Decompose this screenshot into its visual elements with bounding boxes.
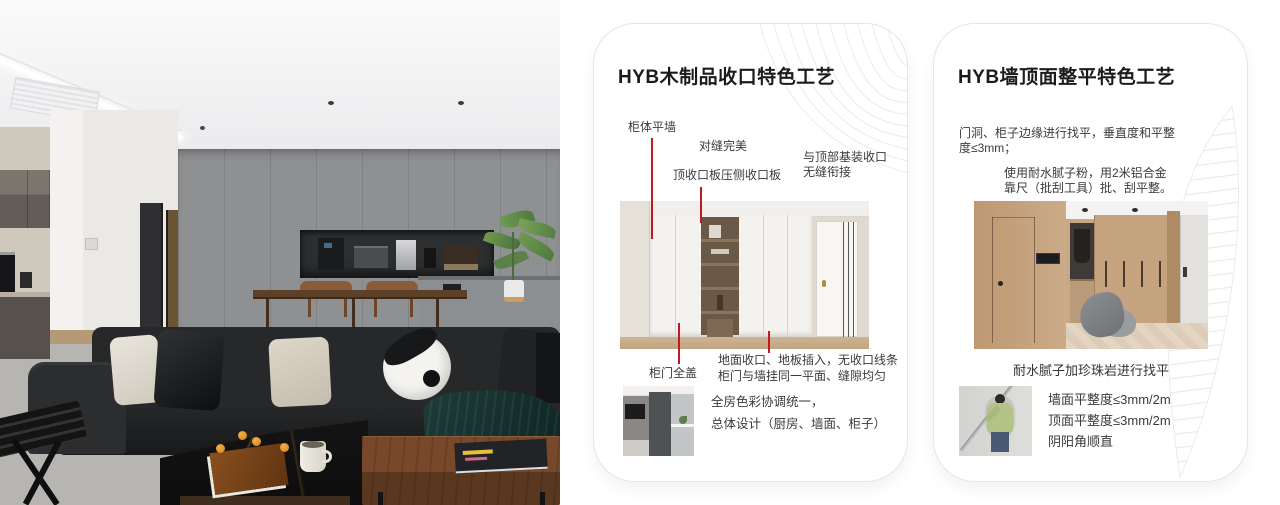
plant-pot xyxy=(504,280,524,302)
color-scheme-thumbnail xyxy=(623,386,694,456)
paragraph-putty-line1: 使用耐水腻子粉，用2米铝合金 xyxy=(1004,166,1167,181)
callout-perfect-seam: 对缝完美 xyxy=(699,140,747,153)
coffee-machine xyxy=(0,252,15,292)
thumb-dark-cabinet xyxy=(649,392,671,456)
plant-stem xyxy=(512,232,514,284)
card2-title: HYB墙顶面整平特色工艺 xyxy=(958,62,1175,89)
coffee-bar-niche xyxy=(300,230,494,278)
spec-ceiling-flatness: 顶面平整度≤3mm/2m xyxy=(1048,410,1171,431)
room-spotlight xyxy=(1132,208,1138,212)
ceiling-spotlight xyxy=(458,101,464,105)
slit-handle xyxy=(1105,261,1107,287)
callout-ceiling-joint-line2: 无缝衔接 xyxy=(803,165,851,180)
ceiling-spotlight xyxy=(328,101,334,105)
note-overall-design: 总体设计（厨房、墙面、柜子） xyxy=(711,414,886,434)
spec-wall-flatness: 墙面平整度≤3mm/2m xyxy=(1048,389,1171,410)
cup-shelf xyxy=(354,246,388,268)
callout-ceiling-joint-line1: 与顶部基装收口 xyxy=(803,150,887,165)
page: HYB木制品收口特色工艺 柜体平墙 对缝完美 顶收口板压侧收口板 与顶部基装收口… xyxy=(0,0,1280,505)
table-leg-metal xyxy=(540,492,545,505)
kitchen-upper-cabinets xyxy=(0,170,50,228)
table-wood-base xyxy=(180,496,350,505)
table-leg-metal xyxy=(378,492,383,505)
callout-floor-line2: 柜门与墙挂同一平面、缝隙均匀 xyxy=(718,369,886,384)
mug-opening xyxy=(302,441,324,448)
slit-handle xyxy=(1123,261,1125,287)
paragraph-leveling-line1: 门洞、柜子边缘进行找平，垂直度和平整 xyxy=(959,126,1175,141)
shelf-board xyxy=(701,263,739,266)
plant-leaf xyxy=(493,248,529,273)
door-stripe xyxy=(848,222,849,338)
render-door xyxy=(816,221,858,337)
shelf-board xyxy=(701,287,739,290)
spec-corner-straight: 阴阳角顺直 xyxy=(1048,431,1113,452)
orange-fruit xyxy=(252,437,261,446)
paragraph-putty-line2: 靠尺（批刮工具）批、刮平整。 xyxy=(1004,181,1172,196)
cabinet-door-seam xyxy=(763,215,764,337)
room-left-wood-wall xyxy=(974,201,1066,349)
thumb-tv xyxy=(625,404,645,419)
black-sling-chair xyxy=(0,408,88,505)
shelf-board xyxy=(701,311,739,314)
worker-jeans xyxy=(991,432,1009,452)
card1-title: HYB木制品收口特色工艺 xyxy=(618,62,835,89)
kitchen-lower-cabinets xyxy=(0,297,50,359)
kitchen-appliance xyxy=(20,272,32,288)
door-stripe xyxy=(843,222,844,338)
door-frame-wood xyxy=(1167,211,1180,339)
white-mug xyxy=(300,441,326,472)
ceiling-spotlight xyxy=(200,126,205,130)
plant-leaf xyxy=(483,228,521,253)
magazine-title-strip xyxy=(463,449,493,455)
leader-line xyxy=(678,323,680,364)
wall-switch xyxy=(85,238,98,250)
pillow-black-edge xyxy=(536,333,560,403)
room-spotlight xyxy=(1082,208,1088,212)
shelf-decor-frame xyxy=(709,225,721,238)
dining-table xyxy=(253,290,467,299)
card-woodwork-craft: HYB木制品收口特色工艺 柜体平墙 对缝完美 顶收口板压侧收口板 与顶部基装收口… xyxy=(593,23,908,482)
espresso-machine xyxy=(396,240,416,270)
pillow-black xyxy=(153,329,224,411)
orange-fruit xyxy=(280,443,289,452)
render-wood-floor xyxy=(620,337,869,349)
panda-eye xyxy=(423,370,440,387)
thumb-plant xyxy=(679,416,687,424)
door-seam xyxy=(992,217,993,343)
worker-thumbnail xyxy=(959,386,1032,456)
magazine-subtitle-strip xyxy=(465,457,487,461)
pillow-beige xyxy=(268,336,331,407)
callout-floor-line1: 地面收口、地板插入，无收口线条 xyxy=(718,353,898,368)
shelf-decor-item xyxy=(711,249,729,254)
cabinet-render-photo xyxy=(620,201,869,349)
note-color-harmony: 全房色彩协调统一， xyxy=(711,392,824,412)
slit-handle xyxy=(1159,261,1161,287)
shelf-board xyxy=(701,239,739,242)
paragraph-leveling-line2: 度≤3mm； xyxy=(959,141,1016,156)
door-handle xyxy=(998,281,1003,286)
thumb-counter xyxy=(671,424,694,427)
hanging-clothes xyxy=(1074,229,1090,263)
intercom-panel xyxy=(1036,253,1060,264)
leader-line xyxy=(651,138,653,239)
orange-fruit xyxy=(216,444,225,453)
glass-door-handle xyxy=(1183,267,1187,277)
chair-straps xyxy=(0,400,87,458)
thumb-floor xyxy=(623,440,649,456)
panda-pillow xyxy=(383,334,451,402)
potted-plant xyxy=(470,210,560,305)
photo-caption: 耐水腻子加珍珠岩进行找平 xyxy=(974,360,1208,379)
interior-door-dark xyxy=(140,203,163,335)
orange-fruit xyxy=(238,431,247,440)
kettle xyxy=(424,248,436,268)
callout-top-closing-board: 顶收口板压侧收口板 xyxy=(673,169,781,182)
leader-line xyxy=(700,187,702,223)
door-handle xyxy=(822,280,826,287)
wood-room-photo xyxy=(974,201,1208,349)
magazine-dark xyxy=(454,439,547,474)
cabinet-door-seam xyxy=(675,215,676,337)
cabinet-seam xyxy=(27,170,28,228)
glass-door xyxy=(1180,215,1208,335)
door-stripe xyxy=(853,222,854,338)
callout-cabinet-flush-wall: 柜体平墙 xyxy=(628,121,676,134)
living-room-photo xyxy=(0,0,560,505)
leader-line xyxy=(768,331,770,353)
render-shelf-niche xyxy=(701,217,739,335)
render-side-wall xyxy=(620,201,650,337)
machine-screen xyxy=(324,243,332,248)
door-seam-top xyxy=(992,217,1035,218)
callout-door-full-cover: 柜门全盖 xyxy=(649,367,697,380)
slit-handle xyxy=(1141,261,1143,287)
cabinet-door-seam xyxy=(787,215,788,337)
interior-door-wood xyxy=(166,210,178,335)
card-leveling-craft: HYB墙顶面整平特色工艺 门洞、柜子边缘进行找平，垂直度和平整 度≤3mm； 使… xyxy=(933,23,1248,482)
shelf-bottle xyxy=(717,295,723,310)
door-seam xyxy=(1034,217,1035,343)
